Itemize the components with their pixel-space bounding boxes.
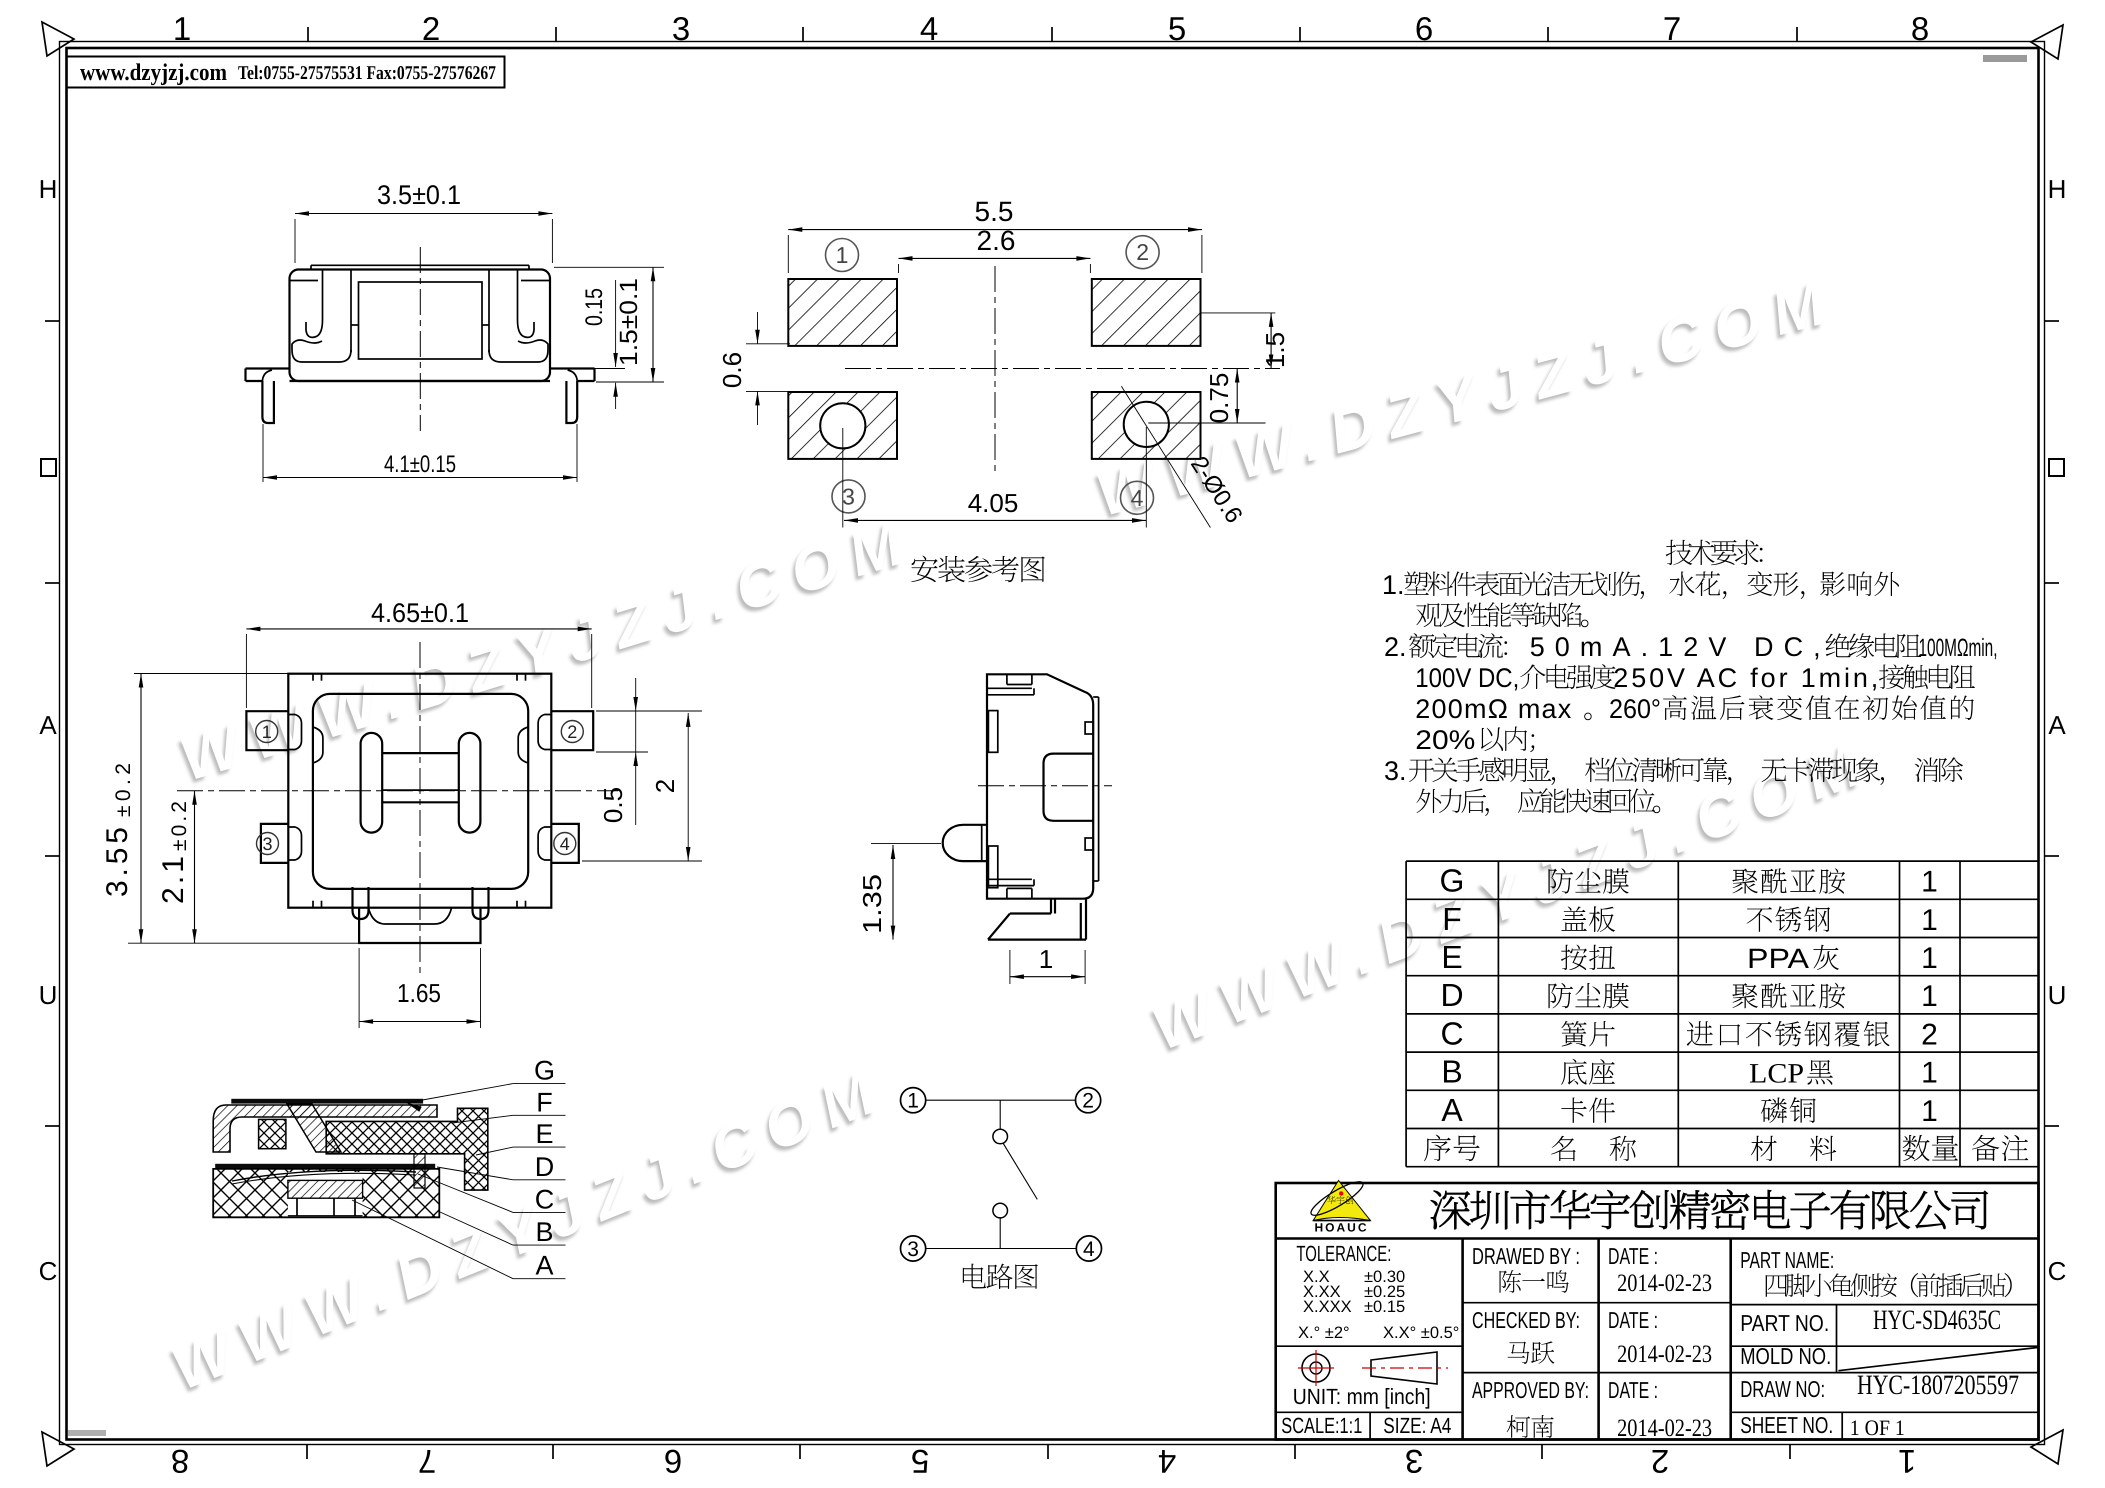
svg-text:DATE :: DATE : bbox=[1608, 1243, 1658, 1269]
svg-text:D: D bbox=[1440, 977, 1463, 1013]
svg-text:DATE :: DATE : bbox=[1608, 1307, 1658, 1333]
svg-text:B: B bbox=[1441, 1054, 1462, 1090]
svg-text:3.5±0.1: 3.5±0.1 bbox=[377, 180, 461, 210]
svg-text:D: D bbox=[535, 1152, 555, 1182]
svg-text:2: 2 bbox=[1921, 1018, 1938, 1051]
svg-text:1: 1 bbox=[1921, 980, 1938, 1013]
svg-text:B: B bbox=[535, 1217, 553, 1247]
svg-text:HOAUC: HOAUC bbox=[1315, 1221, 1369, 1235]
svg-text:2: 2 bbox=[1651, 1443, 1669, 1480]
svg-text:X.X° ±0.5°: X.X° ±0.5° bbox=[1383, 1324, 1459, 1342]
svg-text:G: G bbox=[534, 1056, 555, 1086]
svg-text:6: 6 bbox=[1415, 10, 1433, 47]
svg-text:1.65: 1.65 bbox=[397, 978, 441, 1008]
svg-text:8: 8 bbox=[171, 1443, 189, 1480]
svg-text:PART NAME:: PART NAME: bbox=[1740, 1247, 1834, 1273]
svg-text:260°: 260° bbox=[1609, 694, 1661, 724]
svg-text:2: 2 bbox=[1082, 1090, 1094, 1113]
svg-text:4: 4 bbox=[560, 834, 570, 854]
svg-text:1.35: 1.35 bbox=[857, 874, 887, 934]
svg-text:8: 8 bbox=[1911, 10, 1929, 47]
svg-text:±0.15: ±0.15 bbox=[1364, 1298, 1405, 1316]
svg-text:A: A bbox=[1441, 1092, 1463, 1128]
svg-text:3: 3 bbox=[672, 10, 690, 47]
svg-text:SIZE: A4: SIZE: A4 bbox=[1383, 1413, 1451, 1438]
svg-text:1: 1 bbox=[1921, 1057, 1938, 1090]
svg-text:3: 3 bbox=[842, 483, 855, 509]
svg-text:2: 2 bbox=[422, 10, 440, 47]
svg-text:100MΩmin,: 100MΩmin, bbox=[1919, 634, 1998, 662]
svg-text:2.1: 2.1 bbox=[157, 856, 190, 904]
svg-text:1: 1 bbox=[1921, 866, 1938, 899]
svg-text:H: H bbox=[2048, 174, 2067, 204]
svg-text:1: 1 bbox=[173, 10, 191, 47]
svg-text:7: 7 bbox=[418, 1443, 436, 1480]
svg-text:2.: 2. bbox=[1384, 632, 1407, 662]
svg-text:U: U bbox=[39, 980, 58, 1010]
svg-text:1: 1 bbox=[1921, 904, 1938, 937]
svg-text:5: 5 bbox=[1168, 10, 1186, 47]
svg-text:E: E bbox=[1441, 939, 1462, 975]
svg-text:LCP: LCP bbox=[1749, 1059, 1804, 1090]
svg-text:HYC-1807205597: HYC-1807205597 bbox=[1857, 1370, 2019, 1401]
svg-text:2014-02-23: 2014-02-23 bbox=[1617, 1270, 1712, 1297]
svg-text:1: 1 bbox=[1921, 1095, 1938, 1128]
svg-text:C: C bbox=[39, 1256, 58, 1286]
svg-text:MOLD NO.: MOLD NO. bbox=[1740, 1343, 1831, 1369]
svg-text:100V DC,: 100V DC, bbox=[1415, 663, 1519, 693]
svg-text:2014-02-23: 2014-02-23 bbox=[1617, 1341, 1712, 1368]
svg-text:C: C bbox=[535, 1184, 555, 1214]
svg-text:F: F bbox=[536, 1087, 553, 1117]
svg-text:TOLERANCE:: TOLERANCE: bbox=[1296, 1241, 1391, 1266]
svg-text:5: 5 bbox=[911, 1443, 929, 1480]
svg-text:6: 6 bbox=[664, 1443, 682, 1480]
svg-text:A: A bbox=[535, 1251, 553, 1281]
svg-text:200mΩ max: 200mΩ max bbox=[1415, 694, 1572, 724]
svg-text:H: H bbox=[39, 174, 58, 204]
svg-text:CHECKED BY:: CHECKED BY: bbox=[1472, 1307, 1580, 1333]
svg-text:1: 1 bbox=[1039, 944, 1053, 974]
svg-text:±0.2: ±0.2 bbox=[112, 763, 135, 817]
svg-text:0.5: 0.5 bbox=[598, 787, 628, 823]
svg-text:2014-02-23: 2014-02-23 bbox=[1617, 1415, 1712, 1442]
svg-text:DATE :: DATE : bbox=[1608, 1377, 1658, 1403]
svg-text:1 OF 1: 1 OF 1 bbox=[1850, 1415, 1905, 1440]
svg-text:PPA: PPA bbox=[1747, 943, 1809, 974]
svg-text:0.15: 0.15 bbox=[581, 288, 608, 326]
svg-text:3.55: 3.55 bbox=[101, 827, 134, 897]
svg-text:2: 2 bbox=[650, 779, 680, 793]
svg-text:APPROVED BY:: APPROVED BY: bbox=[1472, 1377, 1589, 1403]
svg-text:4.1±0.15: 4.1±0.15 bbox=[384, 451, 456, 478]
svg-text:UNIT: mm [inch]: UNIT: mm [inch] bbox=[1293, 1384, 1431, 1409]
svg-text:E: E bbox=[535, 1119, 553, 1149]
svg-text:4: 4 bbox=[1158, 1443, 1176, 1480]
svg-text:X.° ±2°: X.° ±2° bbox=[1298, 1324, 1350, 1342]
svg-text:DRAWED BY :: DRAWED BY : bbox=[1472, 1243, 1580, 1269]
svg-text:0.6: 0.6 bbox=[717, 352, 747, 388]
svg-text:HYC-SD4635C: HYC-SD4635C bbox=[1873, 1305, 2001, 1336]
svg-text:Tel:0755-27575531 Fax:0755-27: Tel:0755-27575531 Fax:0755-27576267 bbox=[238, 63, 496, 84]
svg-text:C: C bbox=[2048, 1256, 2067, 1286]
svg-text:3.: 3. bbox=[1384, 756, 1407, 786]
svg-text:4: 4 bbox=[1131, 485, 1144, 511]
svg-text:C: C bbox=[1440, 1015, 1463, 1051]
svg-text:U: U bbox=[2048, 980, 2067, 1010]
svg-text:1: 1 bbox=[907, 1090, 919, 1113]
svg-text:3: 3 bbox=[262, 834, 272, 854]
svg-text:1: 1 bbox=[262, 722, 272, 742]
svg-text:3: 3 bbox=[1405, 1443, 1423, 1480]
svg-text:4: 4 bbox=[920, 10, 938, 47]
svg-text:G: G bbox=[1440, 863, 1465, 899]
svg-text:7: 7 bbox=[1663, 10, 1681, 47]
svg-text:F: F bbox=[1442, 901, 1462, 937]
svg-text:0.75: 0.75 bbox=[1204, 373, 1234, 424]
svg-text:4: 4 bbox=[1083, 1238, 1095, 1261]
svg-text:1.5±0.1: 1.5±0.1 bbox=[615, 278, 643, 366]
svg-text:1: 1 bbox=[1898, 1443, 1916, 1480]
svg-text:DRAW NO:: DRAW NO: bbox=[1740, 1376, 1825, 1402]
svg-text:2: 2 bbox=[567, 722, 577, 742]
svg-text:www.dzyjzj.com: www.dzyjzj.com bbox=[80, 60, 227, 86]
svg-text:PART NO.: PART NO. bbox=[1740, 1310, 1829, 1336]
svg-text:X.XXX: X.XXX bbox=[1303, 1298, 1352, 1316]
svg-text:1.5: 1.5 bbox=[1260, 332, 1290, 368]
svg-text:SHEET NO.: SHEET NO. bbox=[1740, 1412, 1833, 1438]
svg-text:3: 3 bbox=[907, 1238, 919, 1261]
svg-text:1: 1 bbox=[1921, 942, 1938, 975]
svg-text:1: 1 bbox=[836, 242, 849, 268]
svg-text:4.65±0.1: 4.65±0.1 bbox=[371, 598, 469, 628]
svg-text:A: A bbox=[2048, 710, 2066, 740]
svg-text:20%: 20% bbox=[1415, 725, 1475, 755]
svg-text:A: A bbox=[39, 710, 57, 740]
svg-text:SCALE:1:1: SCALE:1:1 bbox=[1281, 1413, 1362, 1438]
svg-text:5.5: 5.5 bbox=[975, 196, 1014, 227]
svg-text:250V AC for 1min,: 250V AC for 1min, bbox=[1613, 663, 1878, 693]
svg-text:2.6: 2.6 bbox=[977, 225, 1016, 256]
svg-text:±0.2: ±0.2 bbox=[168, 801, 191, 851]
svg-text:2: 2 bbox=[1136, 239, 1149, 265]
svg-text:4.05: 4.05 bbox=[968, 488, 1019, 518]
svg-text:1.: 1. bbox=[1382, 570, 1405, 600]
